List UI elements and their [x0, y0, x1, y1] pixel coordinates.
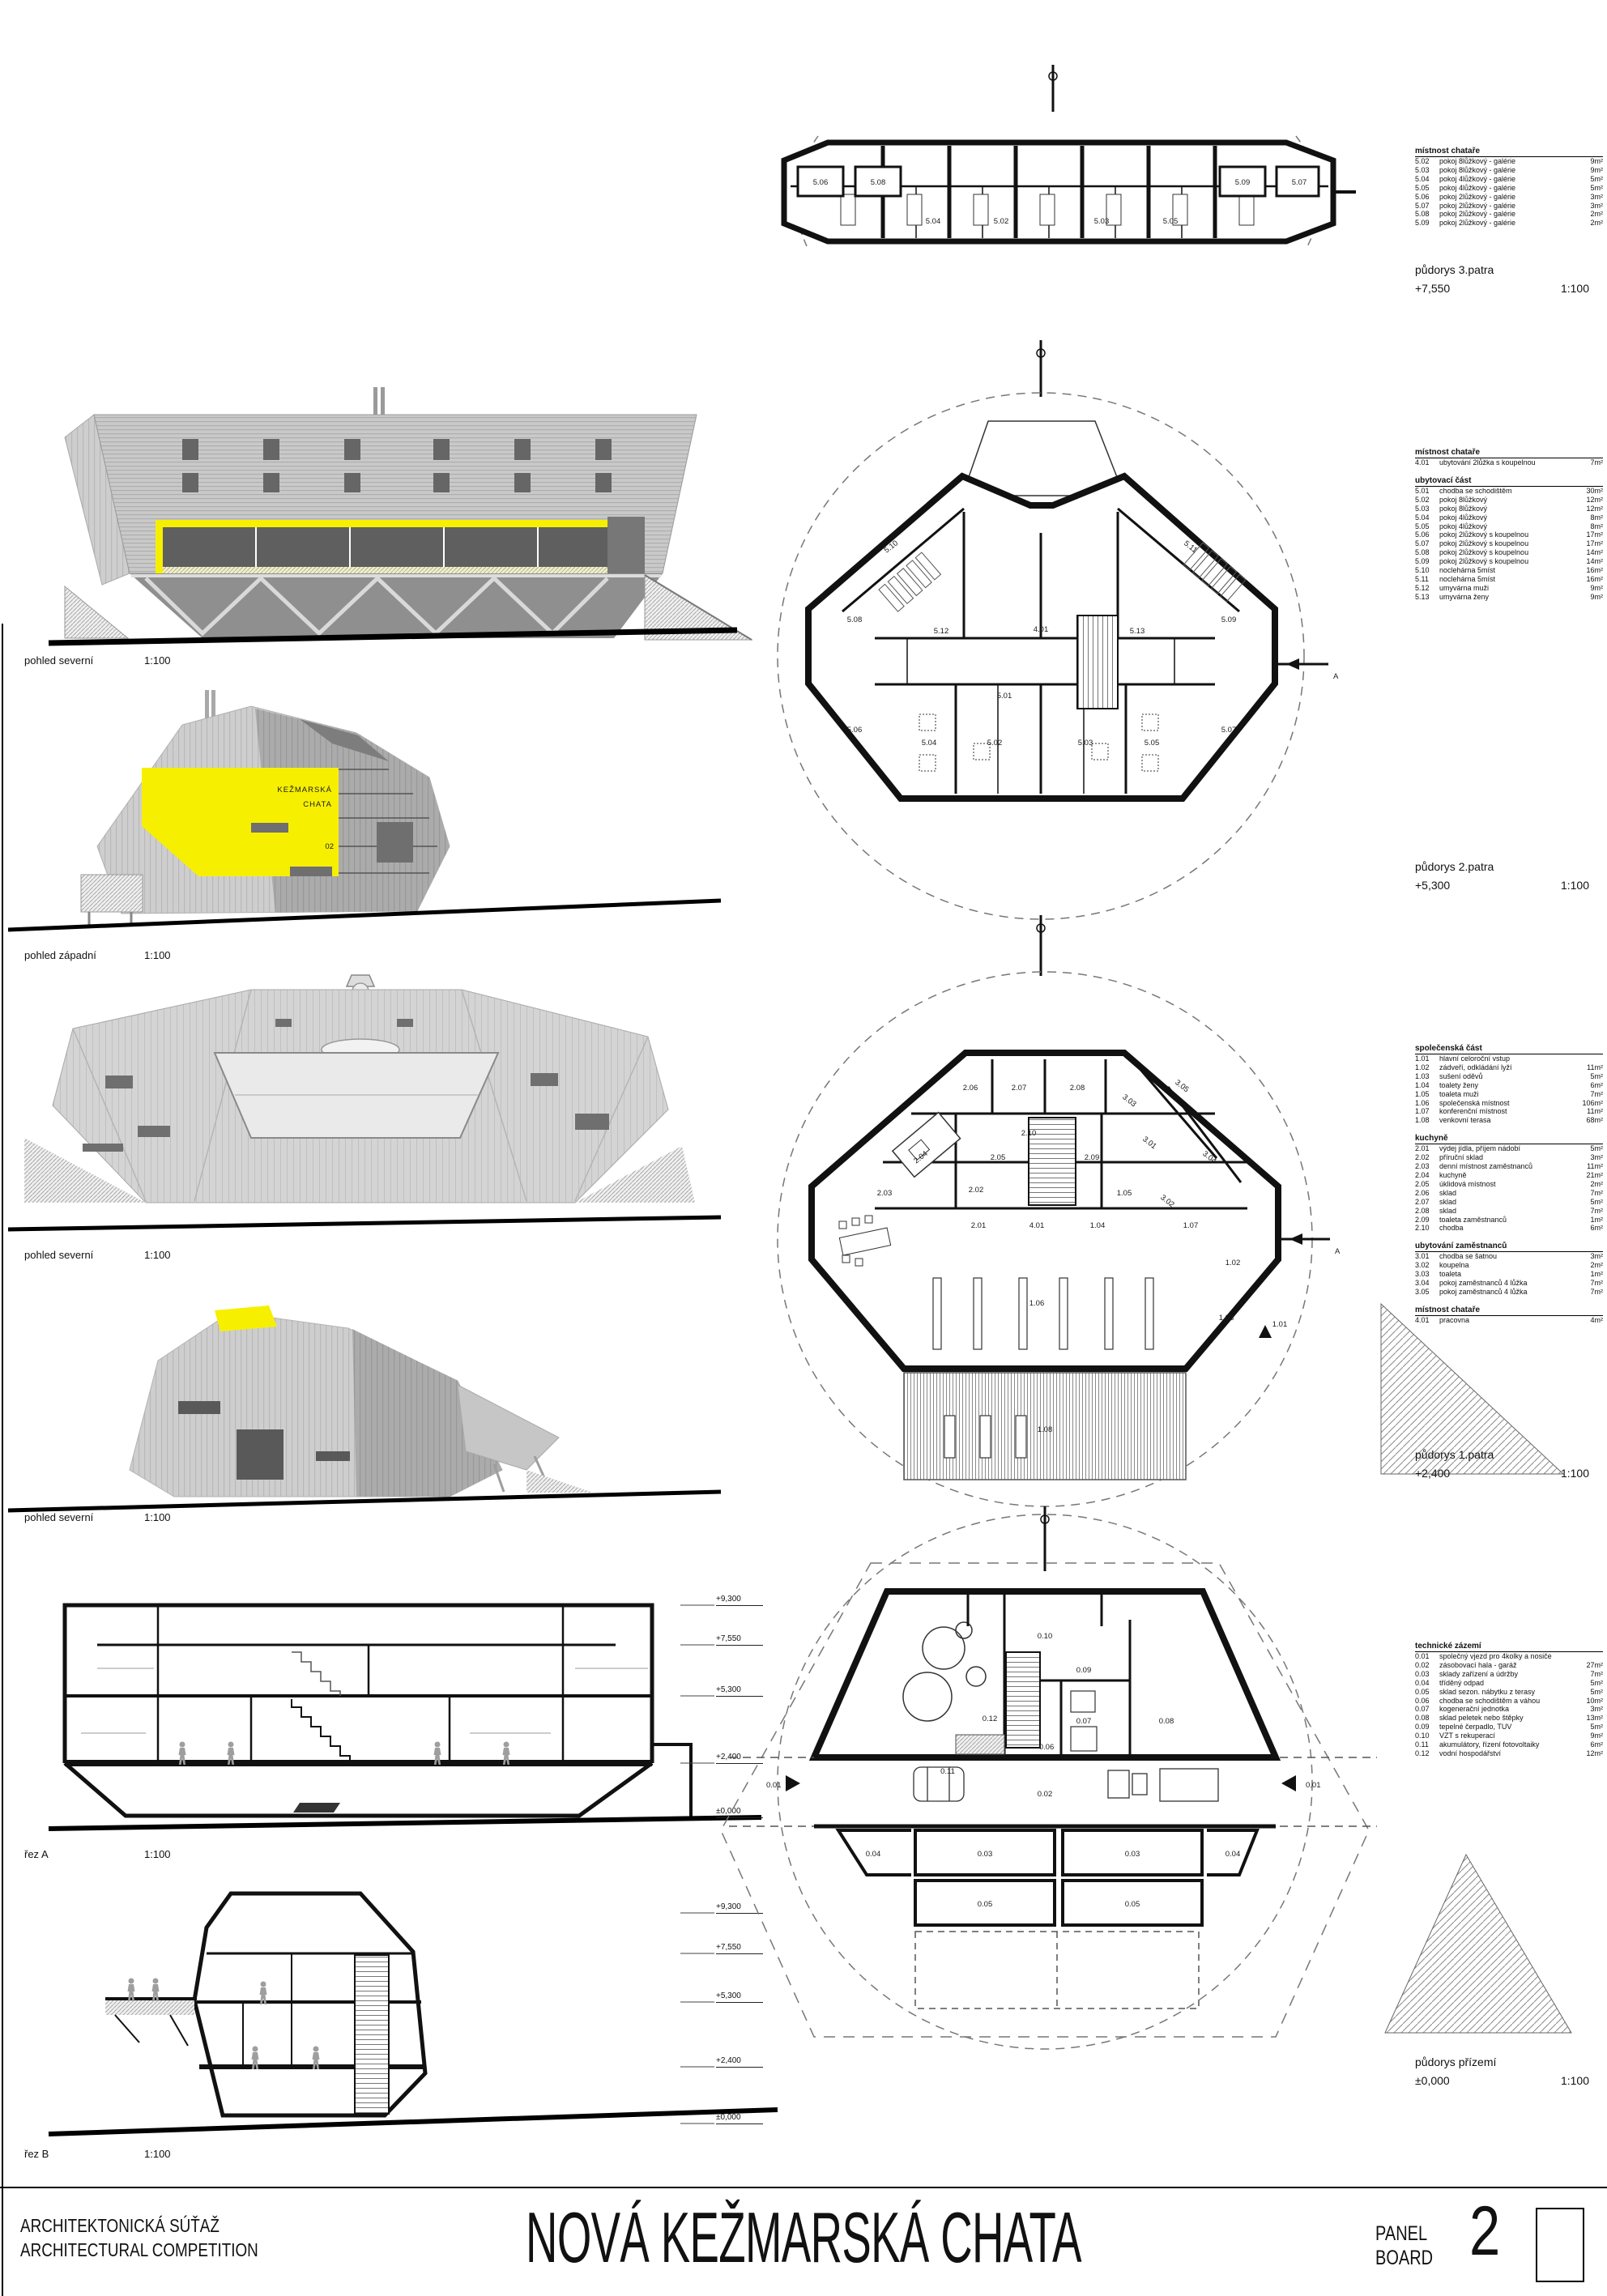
exterior-stair-left — [65, 586, 128, 638]
table-heading: místnost chataře — [1415, 447, 1603, 458]
room-table-floor1: společenská část1.01hlavní celoroční vst… — [1415, 1043, 1603, 1325]
room-name: akumulátory, řízení fotovoltaiky — [1439, 1740, 1591, 1749]
room-name: toaleta zaměstnanců — [1439, 1216, 1591, 1225]
plan-floor2-drawing: A 5.10 5.11 5.08 5.09 5.12 4.01 5.13 5.0… — [761, 340, 1361, 948]
ground-line — [49, 1817, 761, 1829]
room-label: 5.02 — [994, 217, 1009, 226]
room-area: 9m² — [1591, 584, 1604, 593]
room-area: 5m² — [1591, 1723, 1604, 1732]
room-number: 3.03 — [1415, 1270, 1439, 1279]
table-row: 5.04pokoj 4lůžkový8m² — [1415, 513, 1603, 522]
room-area: 21m² — [1586, 1171, 1603, 1180]
room-name: zádveří, odkládání lyží — [1439, 1063, 1587, 1072]
table-heading: společenská část — [1415, 1043, 1603, 1054]
plan-scale: 1:100 — [1561, 879, 1589, 892]
table-row: 1.01hlavní celoroční vstup — [1415, 1054, 1603, 1063]
room-number: 2.01 — [1415, 1144, 1439, 1153]
table-row: 5.10noclehárna 5míst16m² — [1415, 566, 1603, 575]
room-label: 5.05 — [1163, 217, 1179, 226]
room-name: chodba — [1439, 1224, 1591, 1233]
level-mark: ±0,000 — [716, 2113, 763, 2124]
room-name: pokoj 2lůžkový - galérie — [1439, 202, 1591, 211]
access-ramp-hatch — [1385, 1855, 1571, 2033]
room-name: denní místnost zaměstnanců — [1439, 1162, 1587, 1171]
dashed-storage — [915, 1932, 1199, 2008]
room-label: 2.01 — [971, 1221, 987, 1230]
room-number: 5.03 — [1415, 505, 1439, 513]
table-row: 5.13umyvárna ženy9m² — [1415, 593, 1603, 602]
room-label: 2.10 — [1021, 1129, 1037, 1138]
elevation-north-2-drawing — [8, 972, 721, 1251]
room-number: 0.09 — [1415, 1723, 1439, 1732]
room-name: kuchyně — [1439, 1171, 1586, 1180]
room-area: 5m² — [1591, 1144, 1604, 1153]
room-name: konferenční místnost — [1439, 1107, 1587, 1116]
badge-number: 02 — [325, 842, 334, 851]
room-area: 11m² — [1587, 1063, 1603, 1072]
room-number: 0.02 — [1415, 1661, 1439, 1670]
room-name: pokoj 4lůžkový - galérie — [1439, 184, 1591, 193]
room-label: 0.03 — [1125, 1850, 1140, 1859]
room-number: 5.05 — [1415, 522, 1439, 531]
room-area: 9m² — [1591, 1732, 1604, 1740]
room-name: úklidová místnost — [1439, 1180, 1591, 1189]
room-number: 2.10 — [1415, 1224, 1439, 1233]
room-name: pokoj 2lůžkový - galérie — [1439, 219, 1591, 228]
garage-strip — [729, 1757, 1377, 1826]
room-label: 5.07 — [1221, 726, 1237, 735]
room-name: sklady zařízení a údržby — [1439, 1670, 1591, 1679]
room-label: 0.06 — [1039, 1743, 1055, 1752]
room-name: pokoj 2lůžkový s koupelnou — [1439, 530, 1586, 539]
room-label: 0.05 — [1125, 1900, 1140, 1909]
level-ticks — [680, 1913, 714, 2123]
room-name: sklad — [1439, 1189, 1591, 1198]
room-area: 30m² — [1586, 487, 1603, 496]
room-area: 7m² — [1591, 1189, 1604, 1198]
table-row: 2.02příruční sklad3m² — [1415, 1153, 1603, 1162]
room-area: 12m² — [1586, 1749, 1603, 1758]
section-a-drawing — [49, 1571, 794, 1871]
level-mark: +5,300 — [716, 1991, 763, 2003]
room-area: 3m² — [1591, 1705, 1604, 1714]
room-area: 3m² — [1591, 1153, 1604, 1162]
view-name: řez A — [24, 1848, 144, 1860]
room-name: sušení oděvů — [1439, 1072, 1591, 1081]
table-row: 5.04pokoj 4lůžkový - galérie5m² — [1415, 175, 1603, 184]
room-label: 2.07 — [1012, 1084, 1027, 1093]
room-label: 5.08 — [847, 616, 863, 624]
elevation-west-drawing: KEŽMARSKÁ CHATA 02 — [8, 672, 721, 948]
room-number: 5.10 — [1415, 566, 1439, 575]
room-area: 5m² — [1591, 1688, 1604, 1697]
small-stair — [956, 1735, 1004, 1754]
room-number: 3.02 — [1415, 1261, 1439, 1270]
room-label: 0.01 — [766, 1781, 782, 1790]
room-label: 4.01 — [1029, 1221, 1045, 1230]
page-edge-line — [2, 624, 3, 2296]
room-name: pokoj 2lůžkový s koupelnou — [1439, 557, 1586, 566]
level-mark: +2,400 — [716, 2056, 763, 2068]
competition-line-english: ARCHITECTURAL COMPETITION — [20, 2238, 258, 2262]
room-area: 11m² — [1587, 1107, 1603, 1116]
room-number: 5.08 — [1415, 210, 1439, 219]
room-number: 1.07 — [1415, 1107, 1439, 1116]
table-row: 0.12vodní hospodářství12m² — [1415, 1749, 1603, 1758]
room-area: 13m² — [1586, 1714, 1603, 1723]
room-name: tepelné čerpadlo, TUV — [1439, 1723, 1591, 1732]
view-scale: 1:100 — [144, 2148, 171, 2160]
table-row: 5.05pokoj 4lůžkový - galérie5m² — [1415, 184, 1603, 193]
room-area: 27m² — [1586, 1661, 1603, 1670]
view-label-elevation-north-1: pohled severní 1:100 — [24, 654, 171, 667]
room-name: umyvárna ženy — [1439, 593, 1591, 602]
table-heading: ubytování zaměstnanců — [1415, 1241, 1603, 1252]
table-row: 5.06pokoj 2lůžkový s koupelnou17m² — [1415, 530, 1603, 539]
room-area: 9m² — [1591, 157, 1604, 166]
room-label: 2.06 — [963, 1084, 978, 1093]
room-name: sklad — [1439, 1207, 1591, 1216]
room-area: 7m² — [1591, 1207, 1604, 1216]
table-heading: ubytovací část — [1415, 475, 1603, 487]
table-row: 3.03toaleta1m² — [1415, 1270, 1603, 1279]
room-name: pokoj 8lůžkový — [1439, 505, 1586, 513]
room-name: kogenerační jednotka — [1439, 1705, 1591, 1714]
level-mark: +9,300 — [716, 1595, 763, 1606]
table-row: 2.08sklad7m² — [1415, 1207, 1603, 1216]
room-area: 10m² — [1586, 1697, 1603, 1706]
plan-level: +7,550 — [1415, 282, 1450, 295]
badge-line2: CHATA — [303, 800, 332, 809]
interior-walls — [158, 1605, 563, 1763]
view-scale: 1:100 — [144, 1511, 171, 1523]
room-label: 0.05 — [978, 1900, 993, 1909]
room-label: 1.02 — [1225, 1259, 1241, 1267]
room-label: 0.12 — [983, 1715, 998, 1723]
room-label: 5.09 — [1221, 616, 1237, 624]
room-label: 5.07 — [1292, 178, 1307, 187]
room-table-floor2: místnost chataře4.01ubytování 2lůžka s k… — [1415, 447, 1603, 602]
room-number: 5.08 — [1415, 548, 1439, 557]
room-number: 5.03 — [1415, 166, 1439, 175]
level-mark: +7,550 — [716, 1943, 763, 1954]
room-number: 5.07 — [1415, 202, 1439, 211]
room-number: 2.02 — [1415, 1153, 1439, 1162]
ground-line — [8, 1217, 721, 1229]
room-name: toaleta — [1439, 1270, 1591, 1279]
room-label: 5.02 — [987, 739, 1003, 748]
table-row: 2.09toaleta zaměstnanců1m² — [1415, 1216, 1603, 1225]
ground-line — [49, 2110, 778, 2134]
stair — [1077, 616, 1118, 709]
table-row: 0.04tříděný odpad5m² — [1415, 1679, 1603, 1688]
competition-title: ARCHITEKTONICKÁ SÚŤAŽ ARCHITECTURAL COMP… — [20, 2213, 258, 2262]
room-number: 0.07 — [1415, 1705, 1439, 1714]
competition-line-czech: ARCHITEKTONICKÁ SÚŤAŽ — [20, 2213, 258, 2238]
table-row: 0.09tepelné čerpadlo, TUV5m² — [1415, 1723, 1603, 1732]
room-name: ubytování 2lůžka s koupelnou — [1439, 458, 1591, 467]
room-number: 0.03 — [1415, 1670, 1439, 1679]
room-name: tříděný odpad — [1439, 1679, 1591, 1688]
banner-divider-line — [0, 2187, 1607, 2188]
panel-board-label: PANEL BOARD — [1375, 2221, 1433, 2270]
table-row: 0.05sklad sezon. nábytku z terasy5m² — [1415, 1688, 1603, 1697]
room-number: 0.05 — [1415, 1688, 1439, 1697]
room-area: 1m² — [1591, 1270, 1604, 1279]
room-area: 14m² — [1586, 548, 1603, 557]
room-name: chodba se šatnou — [1439, 1252, 1591, 1261]
table-row: 1.08venkovní terasa68m² — [1415, 1116, 1603, 1125]
room-number: 0.01 — [1415, 1652, 1439, 1661]
view-name: pohled severní — [24, 1249, 144, 1261]
room-name: pokoj 2lůžkový s koupelnou — [1439, 539, 1586, 548]
table-row: 0.02zásobovací hala - garáž27m² — [1415, 1661, 1603, 1670]
room-label: 5.03 — [1094, 217, 1110, 226]
view-scale: 1:100 — [144, 949, 171, 961]
room-label: 1.04 — [1090, 1221, 1106, 1230]
room-label: 1.05 — [1117, 1189, 1132, 1198]
room-number: 2.05 — [1415, 1180, 1439, 1189]
room-name: pokoj 4lůžkový - galérie — [1439, 175, 1591, 184]
room-number: 4.01 — [1415, 458, 1439, 467]
room-area: 17m² — [1586, 530, 1603, 539]
room-name: venkovní terasa — [1439, 1116, 1586, 1125]
room-label: 0.09 — [1076, 1666, 1092, 1675]
panel-number: 2 — [1469, 2192, 1500, 2272]
room-number: 0.04 — [1415, 1679, 1439, 1688]
table-row: 5.07pokoj 2lůžkový - galérie3m² — [1415, 202, 1603, 211]
badge-line1: KEŽMARSKÁ — [277, 786, 332, 794]
view-scale: 1:100 — [144, 1848, 171, 1860]
table-row: 5.03pokoj 8lůžkový12m² — [1415, 505, 1603, 513]
storage-rooms — [838, 1830, 1257, 1925]
room-number: 3.04 — [1415, 1279, 1439, 1288]
room-name: pokoj 2lůžkový s koupelnou — [1439, 548, 1586, 557]
room-name: toalety ženy — [1439, 1081, 1591, 1090]
room-label: 5.09 — [1235, 178, 1251, 187]
table-row: 0.01společný vjezd pro 4kolky a nosiče — [1415, 1652, 1603, 1661]
table-row: 5.09pokoj 2lůžkový - galérie2m² — [1415, 219, 1603, 228]
room-number: 2.09 — [1415, 1216, 1439, 1225]
room-number: 1.06 — [1415, 1099, 1439, 1108]
table-row: 4.01ubytování 2lůžka s koupelnou7m² — [1415, 458, 1603, 467]
table-row: 5.02pokoj 8lůžkový - galérie9m² — [1415, 157, 1603, 166]
window — [251, 823, 288, 833]
room-number: 5.06 — [1415, 530, 1439, 539]
plan-name: půdorys 3.patra — [1415, 263, 1589, 276]
room-name: výdej jídla, příjem nádobí — [1439, 1144, 1591, 1153]
room-label: 1.06 — [1029, 1299, 1045, 1308]
room-label: 0.04 — [1225, 1850, 1241, 1859]
room-area: 7m² — [1591, 1279, 1604, 1288]
project-title: NOVÁ KEŽMARSKÁ CHATA — [526, 2196, 1081, 2279]
table-row: 5.12umyvárna muži9m² — [1415, 584, 1603, 593]
room-number: 1.01 — [1415, 1054, 1439, 1063]
chimney — [373, 387, 377, 415]
room-area: 6m² — [1591, 1224, 1604, 1233]
room-label: 5.06 — [813, 178, 829, 187]
room-name: vodní hospodářství — [1439, 1749, 1586, 1758]
table-row: 2.10chodba6m² — [1415, 1224, 1603, 1233]
room-area: 2m² — [1591, 1180, 1604, 1189]
room-label: 1.03 — [1219, 1314, 1234, 1323]
room-area: 5m² — [1591, 1072, 1604, 1081]
room-label: 2.08 — [1070, 1084, 1085, 1093]
room-name: pokoj 8lůžkový — [1439, 496, 1586, 505]
room-name: pokoj 2lůžkový - galérie — [1439, 193, 1591, 202]
room-name: toaleta muži — [1439, 1090, 1591, 1099]
room-area: 6m² — [1591, 1081, 1604, 1090]
room-label: 2.05 — [991, 1153, 1006, 1162]
table-row: 4.01pracovna4m² — [1415, 1316, 1603, 1325]
table-row: 5.08pokoj 2lůžkový - galérie2m² — [1415, 210, 1603, 219]
room-area: 17m² — [1586, 539, 1603, 548]
room-table-ground: technické zázemí0.01společný vjezd pro 4… — [1415, 1641, 1603, 1758]
room-label: 5.01 — [997, 692, 1012, 701]
level-ticks — [680, 1605, 714, 1817]
room-name: chodba se schodištěm — [1439, 487, 1586, 496]
room-number: 5.04 — [1415, 513, 1439, 522]
room-number: 2.07 — [1415, 1198, 1439, 1207]
room-label: 1.08 — [1038, 1425, 1053, 1434]
room-area: 3m² — [1591, 202, 1604, 211]
room-name: noclehárna 5míst — [1439, 575, 1586, 584]
room-area: 9m² — [1591, 166, 1604, 175]
section-a-arrow — [1286, 658, 1299, 670]
room-area: 3m² — [1591, 193, 1604, 202]
table-heading: místnost chataře — [1415, 146, 1603, 157]
upper-stair — [292, 1652, 340, 1696]
room-number: 3.05 — [1415, 1288, 1439, 1297]
table-row: 5.07pokoj 2lůžkový s koupelnou17m² — [1415, 539, 1603, 548]
table-row: 2.03denní místnost zaměstnanců11m² — [1415, 1162, 1603, 1171]
plan-title-floor1: půdorys 1.patra +2,400 1:100 — [1415, 1448, 1589, 1480]
snowmobile — [293, 1803, 340, 1813]
room-number: 3.01 — [1415, 1252, 1439, 1261]
room-number: 5.04 — [1415, 175, 1439, 184]
level-mark: ±0,000 — [716, 1807, 763, 1818]
table-row: 1.05toaleta muži7m² — [1415, 1090, 1603, 1099]
room-label: 5.04 — [926, 217, 941, 226]
room-label: 2.03 — [877, 1189, 893, 1198]
room-name: pokoj 4lůžkový — [1439, 513, 1591, 522]
table-row: 2.05úklidová místnost2m² — [1415, 1180, 1603, 1189]
room-label: 0.11 — [940, 1767, 955, 1776]
table-heading: místnost chataře — [1415, 1305, 1603, 1316]
table-row: 2.04kuchyně21m² — [1415, 1171, 1603, 1180]
entry-arrow-left — [786, 1775, 800, 1791]
room-area: 106m² — [1582, 1099, 1603, 1108]
room-area: 12m² — [1586, 496, 1603, 505]
level-mark: +2,400 — [716, 1753, 763, 1764]
room-area: 7m² — [1591, 1288, 1604, 1297]
view-name: pohled západní — [24, 949, 144, 961]
room-area: 2m² — [1591, 219, 1604, 228]
table-row: 5.06pokoj 2lůžkový - galérie3m² — [1415, 193, 1603, 202]
plan-level: +2,400 — [1415, 1467, 1450, 1480]
room-name: koupelna — [1439, 1261, 1591, 1270]
room-name: příruční sklad — [1439, 1153, 1591, 1162]
view-name: pohled severní — [24, 1511, 144, 1523]
room-area: 1m² — [1591, 1216, 1604, 1225]
window — [290, 867, 332, 876]
table-row: 3.05pokoj zaměstnanců 4 lůžka7m² — [1415, 1288, 1603, 1297]
room-label: 2.09 — [1085, 1153, 1100, 1162]
table-row: 3.01chodba se šatnou3m² — [1415, 1252, 1603, 1261]
room-label: 0.10 — [1038, 1632, 1053, 1641]
room-name: pokoj 4lůžkový — [1439, 522, 1591, 531]
room-area: 5m² — [1591, 175, 1604, 184]
table-row: 5.03pokoj 8lůžkový - galérie9m² — [1415, 166, 1603, 175]
room-table-floor3: místnost chataře5.02pokoj 8lůžkový - gal… — [1415, 146, 1603, 228]
room-label: 0.04 — [866, 1850, 881, 1859]
plan-title-floor2: půdorys 2.patra +5,300 1:100 — [1415, 860, 1589, 892]
room-label: 3.05 — [1173, 1078, 1190, 1094]
room-number: 2.08 — [1415, 1207, 1439, 1216]
room-label: 4.01 — [1034, 625, 1049, 634]
room-label: 5.13 — [1130, 627, 1145, 636]
section-a-letter: A — [1335, 1247, 1341, 1256]
room-label: 5.12 — [934, 627, 949, 636]
room-number: 5.02 — [1415, 496, 1439, 505]
table-row: 1.07konferenční místnost11m² — [1415, 1107, 1603, 1116]
terrace-deck — [81, 875, 143, 912]
room-name: noclehárna 5míst — [1439, 566, 1586, 575]
level-mark: +5,300 — [716, 1685, 763, 1697]
plan-scale: 1:100 — [1561, 2074, 1589, 2087]
room-area: 5m² — [1591, 1679, 1604, 1688]
view-name: řez B — [24, 2148, 144, 2160]
view-label-section-a: řez A 1:100 — [24, 1848, 171, 1860]
view-label-elevation-north-2: pohled severní 1:100 — [24, 1249, 171, 1261]
room-label: 0.01 — [1306, 1781, 1321, 1790]
room-name: pracovna — [1439, 1316, 1591, 1325]
room-area: 16m² — [1586, 575, 1603, 584]
plan-level: +5,300 — [1415, 879, 1450, 892]
room-name: pokoj zaměstnanců 4 lůžka — [1439, 1279, 1591, 1288]
room-area: 5m² — [1591, 184, 1604, 193]
view-scale: 1:100 — [144, 1249, 171, 1261]
room-number: 0.11 — [1415, 1740, 1439, 1749]
room-number: 5.07 — [1415, 539, 1439, 548]
plan-scale: 1:100 — [1561, 1467, 1589, 1480]
table-row: 0.07kogenerační jednotka3m² — [1415, 1705, 1603, 1714]
room-name: umyvárna muži — [1439, 584, 1591, 593]
section-a-arrow — [1289, 1233, 1302, 1245]
room-number: 0.10 — [1415, 1732, 1439, 1740]
room-name: chodba se schodištěm a váhou — [1439, 1697, 1586, 1706]
room-area: 2m² — [1591, 210, 1604, 219]
room-label: 5.08 — [871, 178, 886, 187]
room-number: 1.04 — [1415, 1081, 1439, 1090]
room-number: 5.11 — [1415, 575, 1439, 584]
table-row: 1.03sušení oděvů5m² — [1415, 1072, 1603, 1081]
chimney — [205, 690, 209, 721]
room-name: společný vjezd pro 4kolky a nosiče — [1439, 1652, 1603, 1661]
basement-outline — [814, 1591, 1276, 1757]
room-number: 5.02 — [1415, 157, 1439, 166]
room-label: 2.02 — [969, 1186, 984, 1195]
room-area: 14m² — [1586, 557, 1603, 566]
room-area: 9m² — [1591, 593, 1604, 602]
room-area: 7m² — [1591, 458, 1604, 467]
room-area: 11m² — [1587, 1162, 1603, 1171]
plan-floor3-drawing: 5.06 5.08 5.04 5.02 5.03 5.05 5.09 5.07 — [761, 65, 1361, 275]
room-number: 1.05 — [1415, 1090, 1439, 1099]
room-number: 5.01 — [1415, 487, 1439, 496]
room-name: sklad — [1439, 1198, 1591, 1207]
entry-arrow-right — [1281, 1775, 1296, 1791]
